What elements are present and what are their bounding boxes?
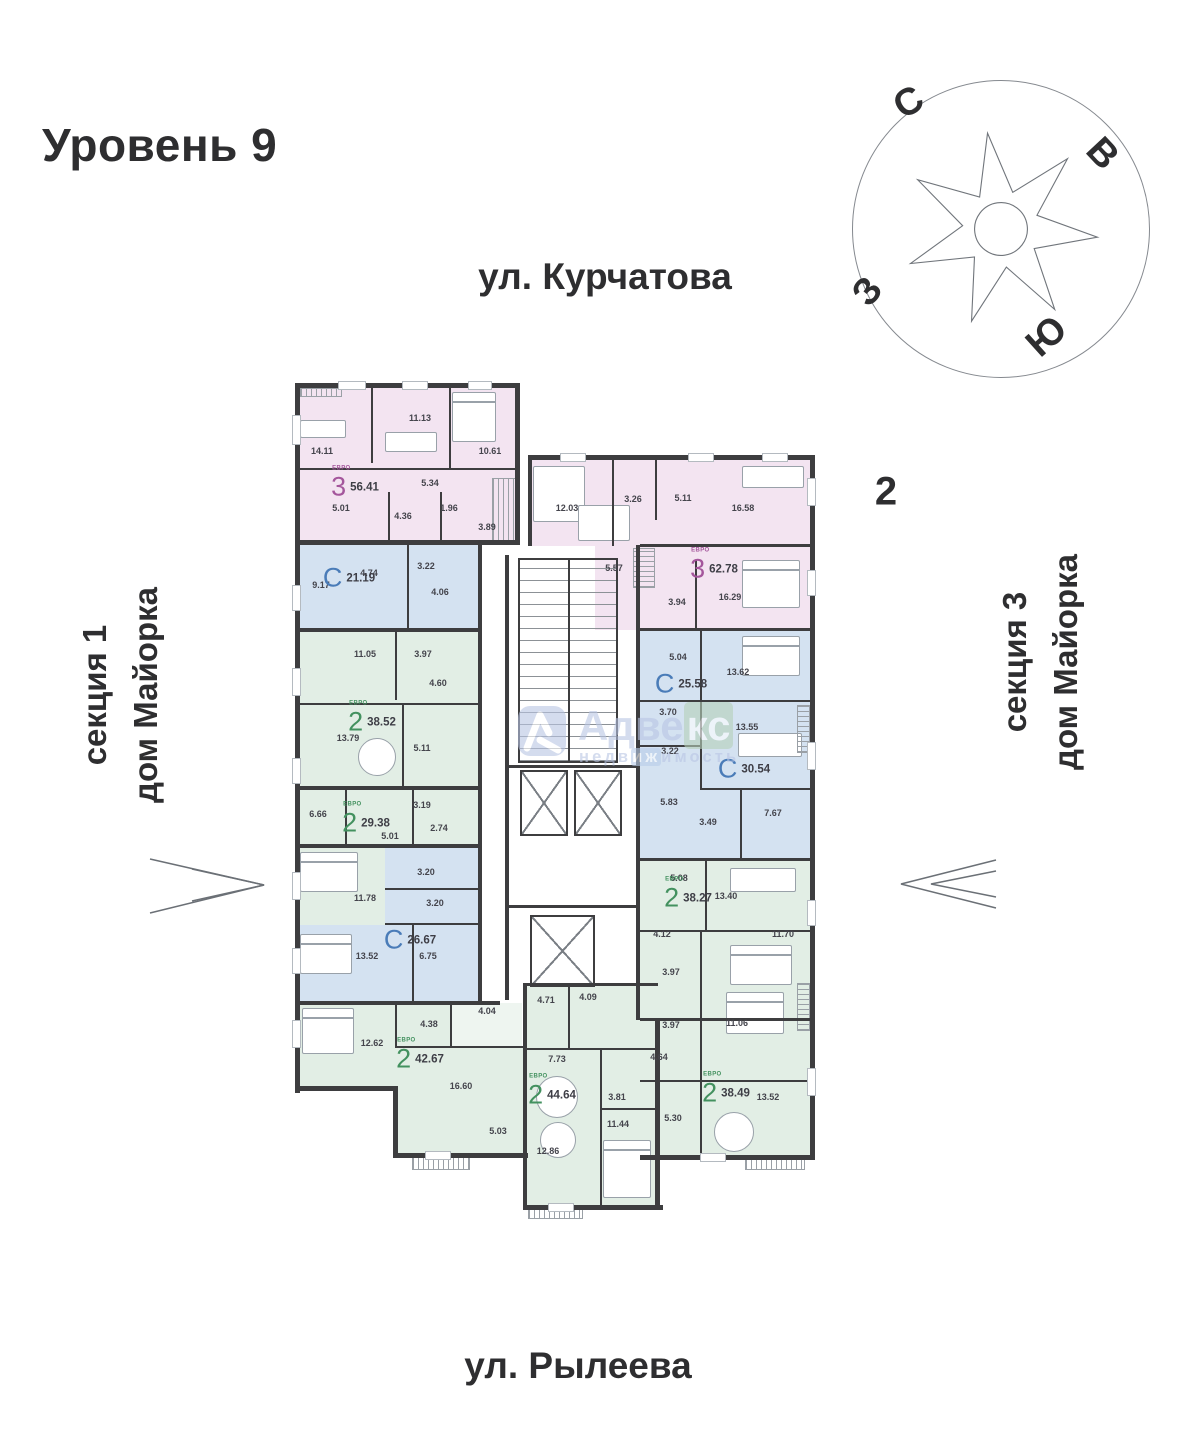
wall-segment — [295, 786, 480, 790]
apartment-label: евро 2 38.52 — [348, 709, 396, 736]
elevator — [520, 770, 568, 836]
room-area-label: 16.29 — [719, 592, 742, 602]
wall-segment — [508, 905, 638, 908]
room-area-label: 13.62 — [727, 667, 750, 677]
apartment-type-tag: евро — [529, 1074, 548, 1080]
window-notch — [807, 742, 816, 770]
balcony-hatch — [300, 388, 342, 397]
apartment-type-tag: евро — [349, 701, 368, 707]
wall-segment — [505, 555, 509, 1000]
window-notch — [700, 1153, 726, 1162]
window-notch — [468, 381, 492, 390]
room-area-label: 13.55 — [736, 722, 759, 732]
partition — [525, 1048, 658, 1050]
partition — [297, 703, 480, 705]
watermark-logo-mark — [518, 706, 566, 756]
room-area-label: 4.06 — [431, 587, 449, 597]
furniture-sofa — [738, 733, 802, 757]
partition — [655, 458, 657, 520]
partition — [297, 468, 517, 470]
room-area-label: 5.34 — [421, 478, 439, 488]
apartment-label: евро 2 44.64 — [528, 1082, 576, 1109]
room-area-label: 13.52 — [356, 951, 379, 961]
partition — [640, 628, 812, 631]
room-area-label: 3.97 — [662, 1020, 680, 1030]
apartment-type: 2 — [664, 885, 679, 912]
furniture-sofa — [742, 466, 804, 488]
room-area-label: 11.05 — [354, 649, 376, 659]
room-area-label: 12.62 — [361, 1038, 384, 1048]
partition — [700, 788, 812, 790]
apartment-area: 56.41 — [350, 481, 379, 493]
room-area-label: 5.57 — [605, 563, 623, 573]
room-area-label: 3.49 — [699, 817, 717, 827]
room-area-label: 3.26 — [624, 494, 642, 504]
partition — [700, 932, 702, 1018]
window-notch — [292, 872, 301, 900]
furniture-bed — [603, 1140, 651, 1198]
window-notch — [338, 381, 366, 390]
window-notch — [762, 453, 788, 462]
apartment-type: 2 — [702, 1080, 717, 1107]
window-notch — [292, 668, 301, 696]
wall-segment — [523, 983, 658, 986]
room-area-label: 3.97 — [414, 649, 432, 659]
partition — [640, 544, 812, 547]
apartment-type: С — [323, 565, 343, 592]
balcony-hatch — [797, 983, 810, 1031]
apartment-label: евро 2 38.27 — [664, 885, 712, 912]
watermark-logo — [518, 706, 566, 756]
furniture-bed — [742, 636, 800, 676]
wall-segment — [810, 455, 815, 1160]
apartment-area: 38.52 — [367, 716, 396, 728]
furniture-bed — [300, 852, 358, 892]
room-area-label: 4.04 — [478, 1006, 496, 1016]
wall-segment — [528, 455, 532, 546]
room-area-label: 4.60 — [429, 678, 447, 688]
room-area-label: 13.52 — [757, 1092, 780, 1102]
room-block-s-26-hall — [385, 846, 482, 925]
window-notch — [548, 1203, 574, 1212]
room-area-label: 5.04 — [669, 652, 687, 662]
partition — [600, 1050, 602, 1205]
furniture-round-table — [714, 1112, 754, 1152]
furniture-bed — [742, 560, 800, 608]
window-notch — [807, 478, 816, 506]
apartment-label: евро 2 38.49 — [702, 1080, 750, 1107]
wall-segment — [393, 1086, 398, 1158]
wall-segment — [523, 1205, 663, 1210]
apartment-area: 38.49 — [721, 1087, 750, 1099]
wall-segment — [640, 1155, 815, 1160]
apartment-label: евро 3 56.41 — [331, 474, 379, 501]
room-area-label: 3.94 — [668, 597, 686, 607]
furniture-bed — [452, 392, 496, 442]
room-area-label: 7.73 — [548, 1054, 566, 1064]
room-area-label: 4.71 — [537, 995, 555, 1005]
furniture-dining-table — [578, 505, 630, 541]
wall-segment — [393, 1153, 528, 1158]
room-area-label: 4.38 — [420, 1019, 438, 1029]
elevator — [574, 770, 622, 836]
window-notch — [292, 585, 301, 611]
elevator — [530, 915, 595, 987]
apartment-type: 2 — [342, 810, 357, 837]
room-area-label: 11.78 — [354, 893, 376, 903]
apartment-type-tag: евро — [332, 466, 351, 472]
room-area-label: 14.11 — [311, 446, 333, 456]
partition — [450, 1003, 452, 1048]
apartment-area: 26.67 — [407, 934, 436, 946]
apartment-area: 44.64 — [547, 1089, 576, 1101]
room-area-label: 5.03 — [489, 1126, 507, 1136]
window-notch — [807, 900, 816, 926]
room-area-label: 3.81 — [608, 1092, 626, 1102]
room-area-label: 4.36 — [394, 511, 412, 521]
partition — [700, 1020, 702, 1080]
wall-segment — [478, 545, 482, 1003]
partition — [412, 786, 414, 844]
apartment-type: С — [655, 671, 675, 698]
window-notch — [807, 570, 816, 596]
window-notch — [292, 948, 301, 974]
room-area-label: 3.20 — [417, 867, 435, 877]
watermark-sub-text2: имость — [661, 748, 739, 766]
partition — [407, 545, 409, 628]
partition — [600, 1108, 658, 1110]
wall-segment — [515, 383, 520, 545]
furniture-bed — [302, 1008, 354, 1054]
window-notch — [292, 1020, 301, 1048]
partition — [388, 492, 390, 542]
room-area-label: 16.58 — [732, 503, 755, 513]
room-area-label: 1.96 — [440, 503, 458, 513]
watermark-brand-text: Адве — [578, 702, 684, 749]
partition — [568, 985, 570, 1048]
apartment-type: 3 — [690, 556, 705, 583]
room-area-label: 13.40 — [715, 891, 738, 901]
partition — [395, 630, 397, 700]
wall-segment — [295, 844, 480, 848]
room-area-label: 5.11 — [674, 493, 691, 503]
apartment-type-tag: евро — [691, 548, 710, 554]
room-area-label: 3.22 — [417, 561, 435, 571]
room-area-label: 6.66 — [309, 809, 327, 819]
window-notch — [560, 453, 586, 462]
apartment-type: 3 — [331, 474, 346, 501]
room-area-label: 3.20 — [426, 898, 444, 908]
room-area-label: 3.89 — [478, 522, 496, 532]
furniture-sofa — [300, 420, 346, 438]
apartment-label: С 26.67 — [384, 927, 436, 954]
apartment-type: 2 — [528, 1082, 543, 1109]
partition — [640, 858, 812, 861]
apartment-type-tag: евро — [397, 1038, 416, 1044]
room-area-label: 5.30 — [664, 1113, 682, 1123]
apartment-area: 62.78 — [709, 563, 738, 575]
furniture-bed — [730, 945, 792, 985]
room-area-label: 3.97 — [662, 967, 680, 977]
window-notch — [688, 453, 714, 462]
apartment-label: евро 2 29.38 — [342, 810, 390, 837]
apartment-type: 2 — [396, 1046, 411, 1073]
room-area-label: 12.03 — [556, 503, 579, 513]
room-area-label: 4.64 — [650, 1052, 668, 1062]
watermark-sub-text1: недв — [579, 748, 631, 766]
partition — [402, 705, 404, 786]
apartment-label: С 25.58 — [655, 671, 707, 698]
apartment-area: 42.67 — [415, 1053, 444, 1065]
furniture-sofa — [385, 432, 437, 452]
apartment-label: евро 2 42.67 — [396, 1046, 444, 1073]
room-area-label: 16.60 — [450, 1081, 473, 1091]
room-area-label: 11.44 — [607, 1119, 629, 1129]
apartment-type: 2 — [348, 709, 363, 736]
apartment-area: 25.58 — [678, 678, 707, 690]
wall-segment — [636, 545, 640, 1020]
furniture-round-table — [358, 738, 396, 776]
room-area-label: 4.12 — [653, 929, 671, 939]
partition — [385, 888, 482, 890]
apartment-type-tag: евро — [665, 877, 684, 883]
wall-segment — [295, 1086, 398, 1091]
apartment-type-tag: евро — [703, 1072, 722, 1078]
watermark-sub-highlight: иж — [631, 748, 661, 766]
room-area-label: 11.70 — [772, 929, 794, 939]
window-notch — [402, 381, 428, 390]
watermark-subtitle: недвижимость — [579, 748, 739, 767]
wall-segment — [523, 985, 527, 1210]
wall-segment — [295, 628, 480, 632]
room-area-label: 11.13 — [409, 413, 431, 423]
room-area-label: 4.09 — [579, 992, 597, 1002]
watermark-brand-highlight: кс — [684, 702, 734, 749]
apartment-label: евро 3 62.78 — [690, 556, 738, 583]
room-area-label: 7.67 — [764, 808, 782, 818]
room-area-label: 5.11 — [413, 743, 430, 753]
room-area-label: 10.61 — [479, 446, 502, 456]
partition — [612, 458, 614, 546]
watermark-brand: Адвекс — [578, 702, 733, 750]
room-area-label: 5.83 — [660, 797, 678, 807]
apartment-label: С 21.19 — [323, 565, 375, 592]
wall-segment — [295, 1001, 500, 1005]
partition — [449, 385, 451, 470]
window-notch — [807, 1068, 816, 1096]
furniture-bed — [300, 934, 352, 974]
window-notch — [425, 1151, 451, 1160]
apartment-area: 21.19 — [346, 572, 375, 584]
partition — [371, 385, 373, 463]
room-area-label: 5.01 — [332, 503, 350, 513]
window-notch — [292, 758, 301, 784]
apartment-type-tag: евро — [343, 802, 362, 808]
apartment-area: 29.38 — [361, 817, 390, 829]
apartment-type: С — [384, 927, 404, 954]
wall-segment — [295, 383, 300, 1093]
room-area-label: 2.74 — [430, 823, 448, 833]
partition — [440, 492, 442, 542]
room-area-label: 12.86 — [537, 1146, 560, 1156]
furniture-sofa — [730, 868, 796, 892]
apartment-area: 30.54 — [741, 763, 770, 775]
apartment-area: 38.27 — [683, 892, 712, 904]
window-notch — [292, 415, 301, 445]
room-area-label: 3.19 — [413, 800, 431, 810]
room-area-label: 11.06 — [726, 1018, 748, 1028]
partition — [740, 790, 742, 860]
